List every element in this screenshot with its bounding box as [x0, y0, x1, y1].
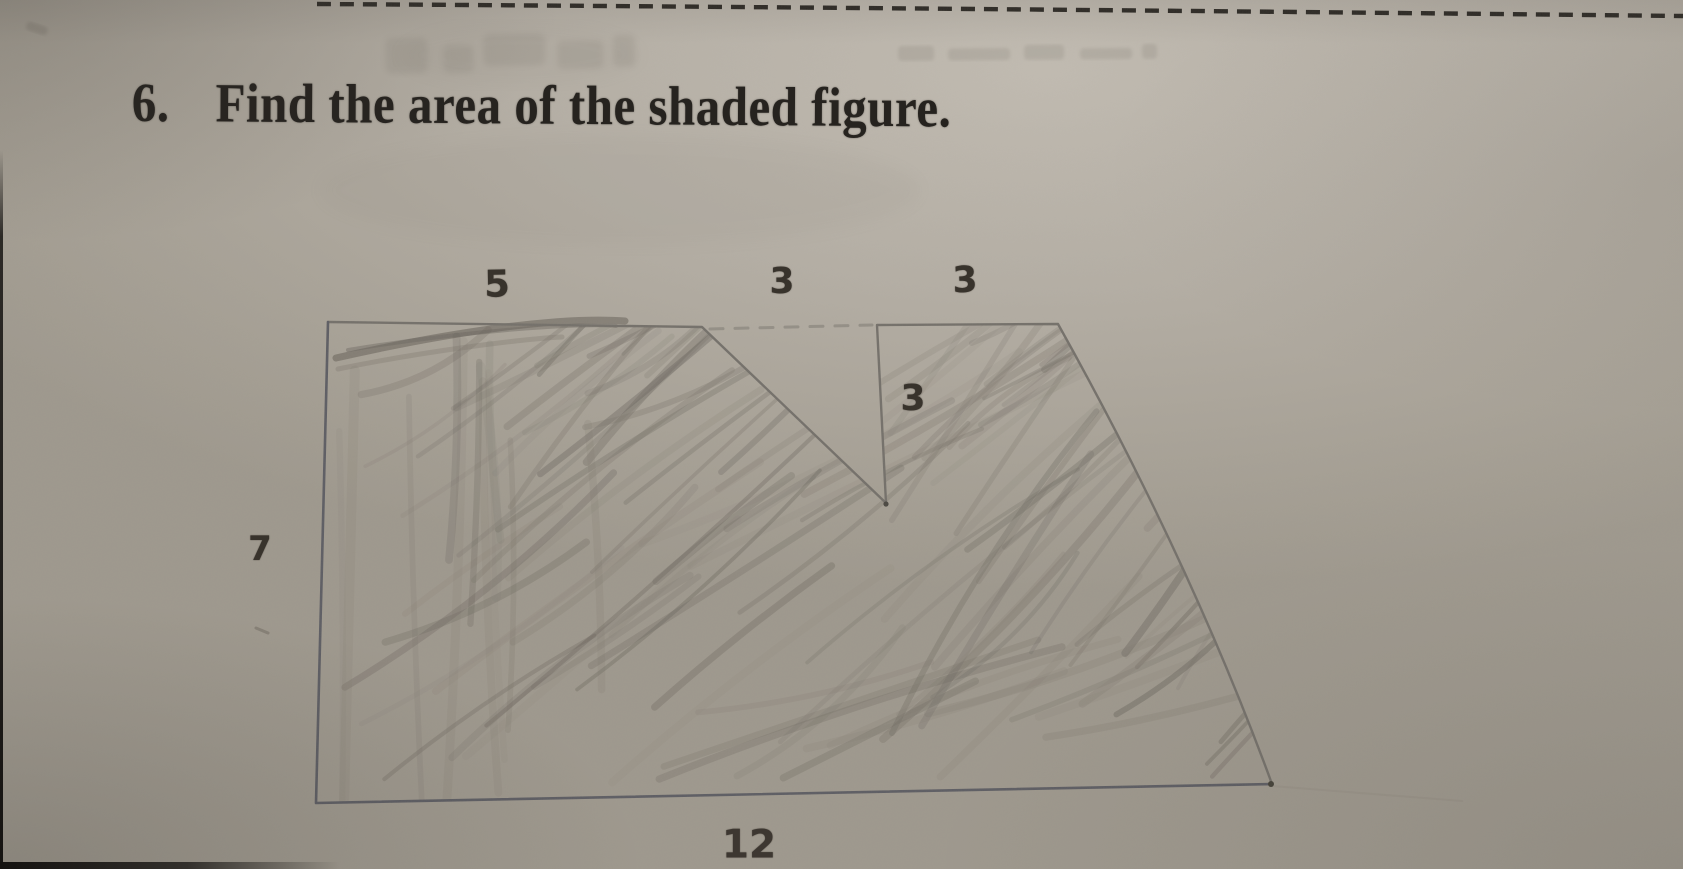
problem-number: 6. — [132, 70, 170, 135]
dimension-label-top-middle: 3 — [769, 264, 794, 300]
worksheet-photo: { "problem": { "number": "6.", "title": … — [0, 0, 1683, 869]
dimension-label-bottom: 12 — [722, 826, 776, 865]
dimension-label-notch-depth: 3 — [900, 381, 925, 417]
problem-title-text: Find the area of the shaded figure. — [215, 72, 951, 139]
photo-left-edge — [0, 150, 3, 869]
dimension-label-left-side: 7 — [248, 532, 272, 566]
dimension-label-top-right: 3 — [952, 263, 978, 300]
photo-bottom-edge — [0, 862, 340, 869]
problem-title: 6.Find the area of the shaded figure. — [132, 70, 952, 140]
dimension-label-top-left: 5 — [484, 265, 510, 302]
